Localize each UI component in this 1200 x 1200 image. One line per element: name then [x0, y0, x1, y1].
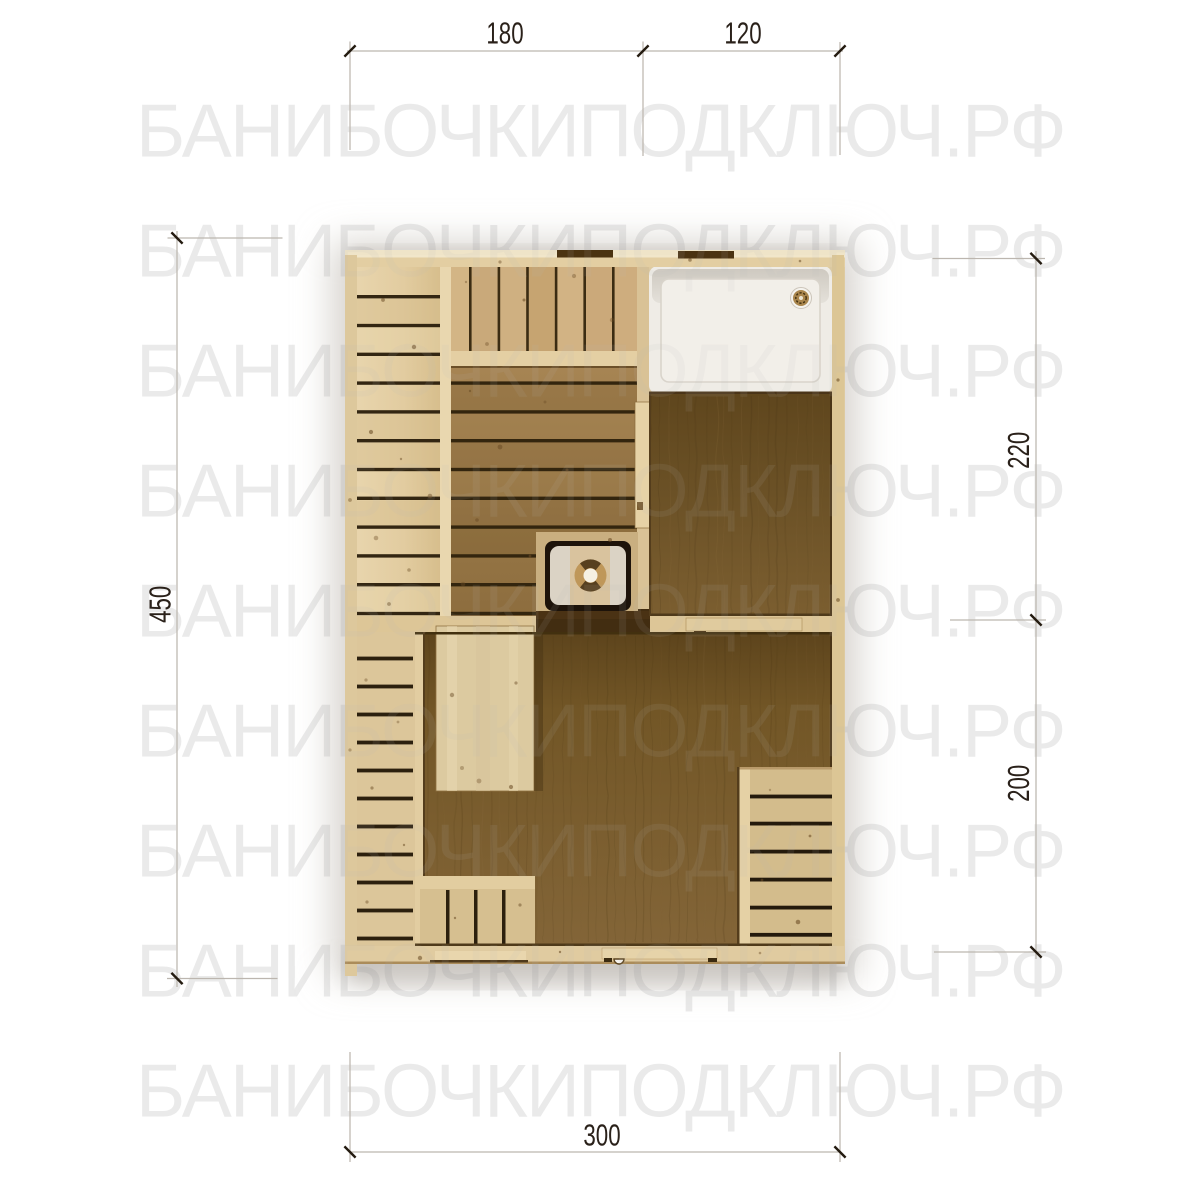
svg-text:200: 200 [1002, 765, 1036, 802]
svg-text:180: 180 [486, 16, 523, 50]
svg-text:300: 300 [583, 1118, 620, 1152]
svg-text:БАНИБОЧКИПОДКЛЮЧ.РФ: БАНИБОЧКИПОДКЛЮЧ.РФ [136, 89, 1065, 173]
svg-text:450: 450 [143, 586, 177, 623]
svg-text:220: 220 [1002, 432, 1036, 469]
svg-text:120: 120 [724, 16, 761, 50]
